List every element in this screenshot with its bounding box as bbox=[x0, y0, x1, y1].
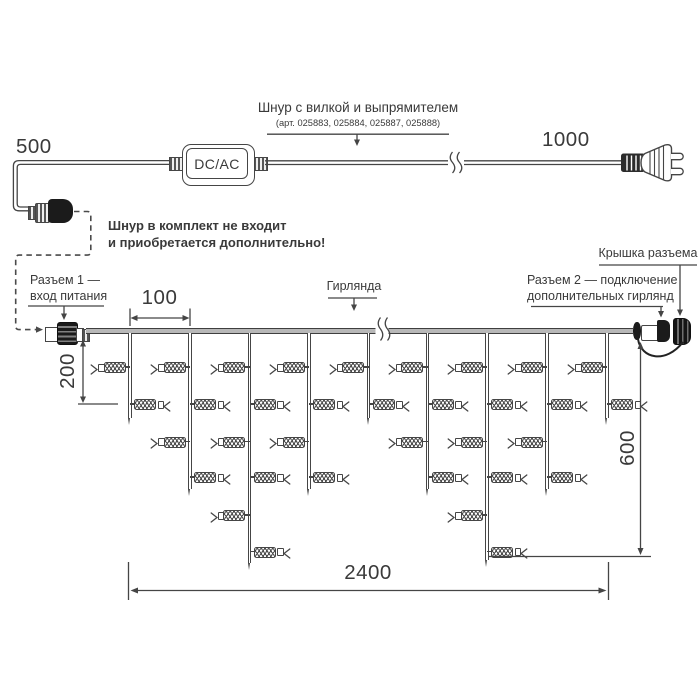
bulb-sparkle-icon bbox=[150, 436, 158, 454]
led-bulb-icon bbox=[250, 546, 290, 558]
bulb-sparkle-icon bbox=[283, 472, 291, 490]
led-bulb-icon bbox=[447, 509, 487, 521]
garland-drop-tip bbox=[367, 418, 369, 425]
bulb-sparkle-icon bbox=[163, 399, 171, 417]
bulb-sparkle-icon bbox=[447, 510, 455, 528]
bulb-sparkle-icon bbox=[461, 472, 469, 490]
led-bulb-icon bbox=[250, 471, 290, 483]
led-bulb-icon bbox=[487, 546, 527, 558]
bulb-body bbox=[223, 437, 245, 448]
bulb-sparkle-icon bbox=[210, 362, 218, 380]
bulb-body bbox=[283, 437, 305, 448]
led-bulb-icon bbox=[250, 398, 290, 410]
garland-drop-tip bbox=[248, 563, 250, 570]
bulb-sparkle-icon bbox=[520, 399, 528, 417]
garland-drop-tip bbox=[605, 418, 607, 425]
bulb-body bbox=[491, 547, 513, 558]
garland-drop-tip bbox=[307, 489, 309, 496]
led-bulb-icon bbox=[150, 361, 190, 373]
bulb-body bbox=[373, 399, 395, 410]
bulb-stem bbox=[422, 366, 428, 367]
bulb-stem bbox=[482, 366, 488, 367]
bulb-sparkle-icon bbox=[283, 546, 291, 564]
bulb-body bbox=[194, 399, 216, 410]
led-bulb-icon bbox=[210, 436, 250, 448]
bulb-sparkle-icon bbox=[223, 472, 231, 490]
bulb-sparkle-icon bbox=[580, 472, 588, 490]
bulb-sparkle-icon bbox=[90, 362, 98, 380]
led-bulb-icon bbox=[388, 361, 428, 373]
bulb-body bbox=[134, 399, 156, 410]
bulb-sparkle-icon bbox=[269, 436, 277, 454]
bulb-cap bbox=[515, 364, 522, 372]
bulb-sparkle-icon bbox=[402, 399, 410, 417]
bulb-body bbox=[283, 362, 305, 373]
bulb-stem bbox=[244, 441, 250, 442]
bulb-body bbox=[254, 547, 276, 558]
led-bulb-icon bbox=[567, 361, 607, 373]
led-bulb-icon bbox=[607, 398, 647, 410]
led-bulb-icon bbox=[269, 436, 309, 448]
bulb-stem bbox=[542, 366, 548, 367]
bulb-body bbox=[104, 362, 126, 373]
bulb-body bbox=[401, 362, 423, 373]
led-bulb-icon bbox=[428, 471, 468, 483]
bulb-body bbox=[164, 437, 186, 448]
bulb-sparkle-icon bbox=[269, 362, 277, 380]
led-bulb-icon bbox=[369, 398, 409, 410]
bulb-cap bbox=[218, 438, 225, 446]
led-bulb-icon bbox=[90, 361, 130, 373]
bulb-body bbox=[223, 510, 245, 521]
bulb-body bbox=[223, 362, 245, 373]
bulb-cap bbox=[455, 512, 462, 520]
led-bulb-icon bbox=[487, 471, 527, 483]
bulb-stem bbox=[542, 441, 548, 442]
bulb-body bbox=[432, 399, 454, 410]
bulb-body bbox=[521, 362, 543, 373]
bulb-body bbox=[342, 362, 364, 373]
bulb-cap bbox=[575, 364, 582, 372]
led-bulb-icon bbox=[507, 361, 547, 373]
bulb-body bbox=[461, 437, 483, 448]
garland bbox=[0, 0, 700, 700]
bulb-body bbox=[254, 399, 276, 410]
bulb-sparkle-icon bbox=[520, 472, 528, 490]
bulb-body bbox=[491, 472, 513, 483]
bulb-body bbox=[491, 399, 513, 410]
bulb-sparkle-icon bbox=[210, 510, 218, 528]
bulb-stem bbox=[244, 366, 250, 367]
led-bulb-icon bbox=[309, 471, 349, 483]
bulb-cap bbox=[218, 512, 225, 520]
bulb-body bbox=[521, 437, 543, 448]
bulb-stem bbox=[185, 366, 191, 367]
bulb-cap bbox=[158, 438, 165, 446]
led-bulb-icon bbox=[388, 436, 428, 448]
led-bulb-icon bbox=[487, 398, 527, 410]
bulb-sparkle-icon bbox=[461, 399, 469, 417]
led-bulb-icon bbox=[447, 361, 487, 373]
bulb-body bbox=[313, 472, 335, 483]
garland-drop bbox=[188, 333, 192, 489]
bulb-sparkle-icon bbox=[580, 399, 588, 417]
bulb-sparkle-icon bbox=[567, 362, 575, 380]
bulb-body bbox=[551, 399, 573, 410]
bulb-cap bbox=[455, 438, 462, 446]
bulb-sparkle-icon bbox=[150, 362, 158, 380]
bulb-sparkle-icon bbox=[507, 436, 515, 454]
led-bulb-icon bbox=[130, 398, 170, 410]
garland-drop-tip bbox=[128, 418, 130, 425]
bulb-stem bbox=[602, 366, 608, 367]
garland-drop bbox=[545, 333, 549, 489]
bulb-body bbox=[551, 472, 573, 483]
bulb-cap bbox=[98, 364, 105, 372]
bulb-body bbox=[461, 510, 483, 521]
bulb-cap bbox=[455, 364, 462, 372]
led-bulb-icon bbox=[309, 398, 349, 410]
bulb-sparkle-icon bbox=[388, 362, 396, 380]
bulb-cap bbox=[277, 364, 284, 372]
bulb-stem bbox=[482, 441, 488, 442]
garland-drop-tip bbox=[545, 489, 547, 496]
bulb-body bbox=[461, 362, 483, 373]
bulb-body bbox=[611, 399, 633, 410]
bulb-cap bbox=[396, 438, 403, 446]
bulb-sparkle-icon bbox=[640, 399, 648, 417]
bulb-body bbox=[581, 362, 603, 373]
bulb-body bbox=[194, 472, 216, 483]
bulb-stem bbox=[185, 441, 191, 442]
bulb-sparkle-icon bbox=[507, 362, 515, 380]
bulb-cap bbox=[337, 364, 344, 372]
garland-drop bbox=[307, 333, 311, 489]
diagram-canvas: Шнур с вилкой и выпрямителем (арт. 02588… bbox=[0, 0, 700, 700]
led-bulb-icon bbox=[269, 361, 309, 373]
bulb-sparkle-icon bbox=[223, 399, 231, 417]
bulb-sparkle-icon bbox=[210, 436, 218, 454]
bulb-cap bbox=[396, 364, 403, 372]
bulb-sparkle-icon bbox=[447, 362, 455, 380]
led-bulb-icon bbox=[190, 398, 230, 410]
bulb-stem bbox=[363, 366, 369, 367]
bulb-cap bbox=[218, 364, 225, 372]
bulb-stem bbox=[304, 441, 310, 442]
bulb-cap bbox=[515, 438, 522, 446]
led-bulb-icon bbox=[547, 471, 587, 483]
led-bulb-icon bbox=[428, 398, 468, 410]
led-bulb-icon bbox=[190, 471, 230, 483]
garland-drop-tip bbox=[485, 560, 487, 567]
bulb-body bbox=[164, 362, 186, 373]
led-bulb-icon bbox=[150, 436, 190, 448]
bulb-sparkle-icon bbox=[447, 436, 455, 454]
garland-drop bbox=[426, 333, 430, 489]
led-bulb-icon bbox=[329, 361, 369, 373]
bulb-cap bbox=[277, 438, 284, 446]
bulb-stem bbox=[304, 366, 310, 367]
bulb-stem bbox=[244, 514, 250, 515]
bulb-body bbox=[313, 399, 335, 410]
bulb-cap bbox=[158, 364, 165, 372]
bulb-sparkle-icon bbox=[283, 399, 291, 417]
bulb-stem bbox=[125, 366, 131, 367]
led-bulb-icon bbox=[507, 436, 547, 448]
led-bulb-icon bbox=[210, 509, 250, 521]
bulb-sparkle-icon bbox=[520, 546, 528, 564]
bulb-body bbox=[401, 437, 423, 448]
led-bulb-icon bbox=[210, 361, 250, 373]
led-bulb-icon bbox=[447, 436, 487, 448]
bulb-body bbox=[432, 472, 454, 483]
bulb-sparkle-icon bbox=[329, 362, 337, 380]
bulb-stem bbox=[482, 514, 488, 515]
bulb-stem bbox=[422, 441, 428, 442]
garland-drop-tip bbox=[188, 489, 190, 496]
bulb-sparkle-icon bbox=[388, 436, 396, 454]
bulb-sparkle-icon bbox=[342, 399, 350, 417]
garland-main-wire bbox=[86, 328, 633, 334]
garland-drop-tip bbox=[426, 489, 428, 496]
bulb-body bbox=[254, 472, 276, 483]
bulb-sparkle-icon bbox=[342, 472, 350, 490]
led-bulb-icon bbox=[547, 398, 587, 410]
